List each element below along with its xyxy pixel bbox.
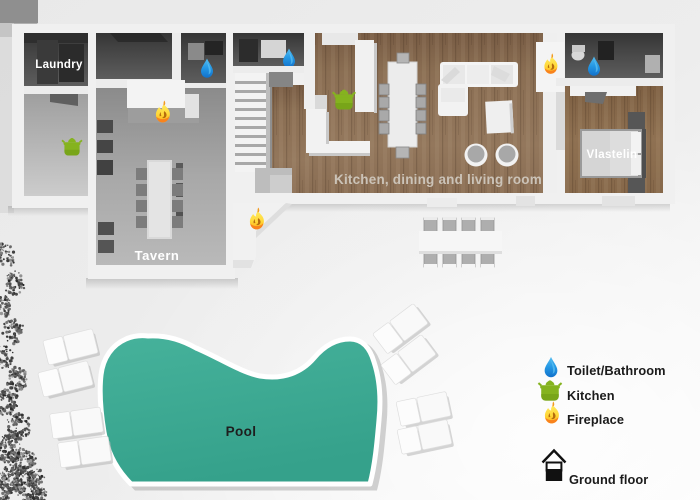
svg-text:Fireplace: Fireplace <box>567 412 624 427</box>
svg-text:Laundry: Laundry <box>35 59 83 71</box>
svg-text:Kitchen, dining and living roo: Kitchen, dining and living room <box>334 172 542 187</box>
svg-text:Vlastelin: Vlastelin <box>587 149 638 161</box>
svg-text:Ground floor: Ground floor <box>569 472 648 487</box>
svg-text:Toilet/Bathroom: Toilet/Bathroom <box>567 363 666 378</box>
svg-text:Pool: Pool <box>226 424 257 439</box>
svg-text:Kitchen: Kitchen <box>567 388 615 403</box>
svg-text:Tavern: Tavern <box>135 248 180 263</box>
